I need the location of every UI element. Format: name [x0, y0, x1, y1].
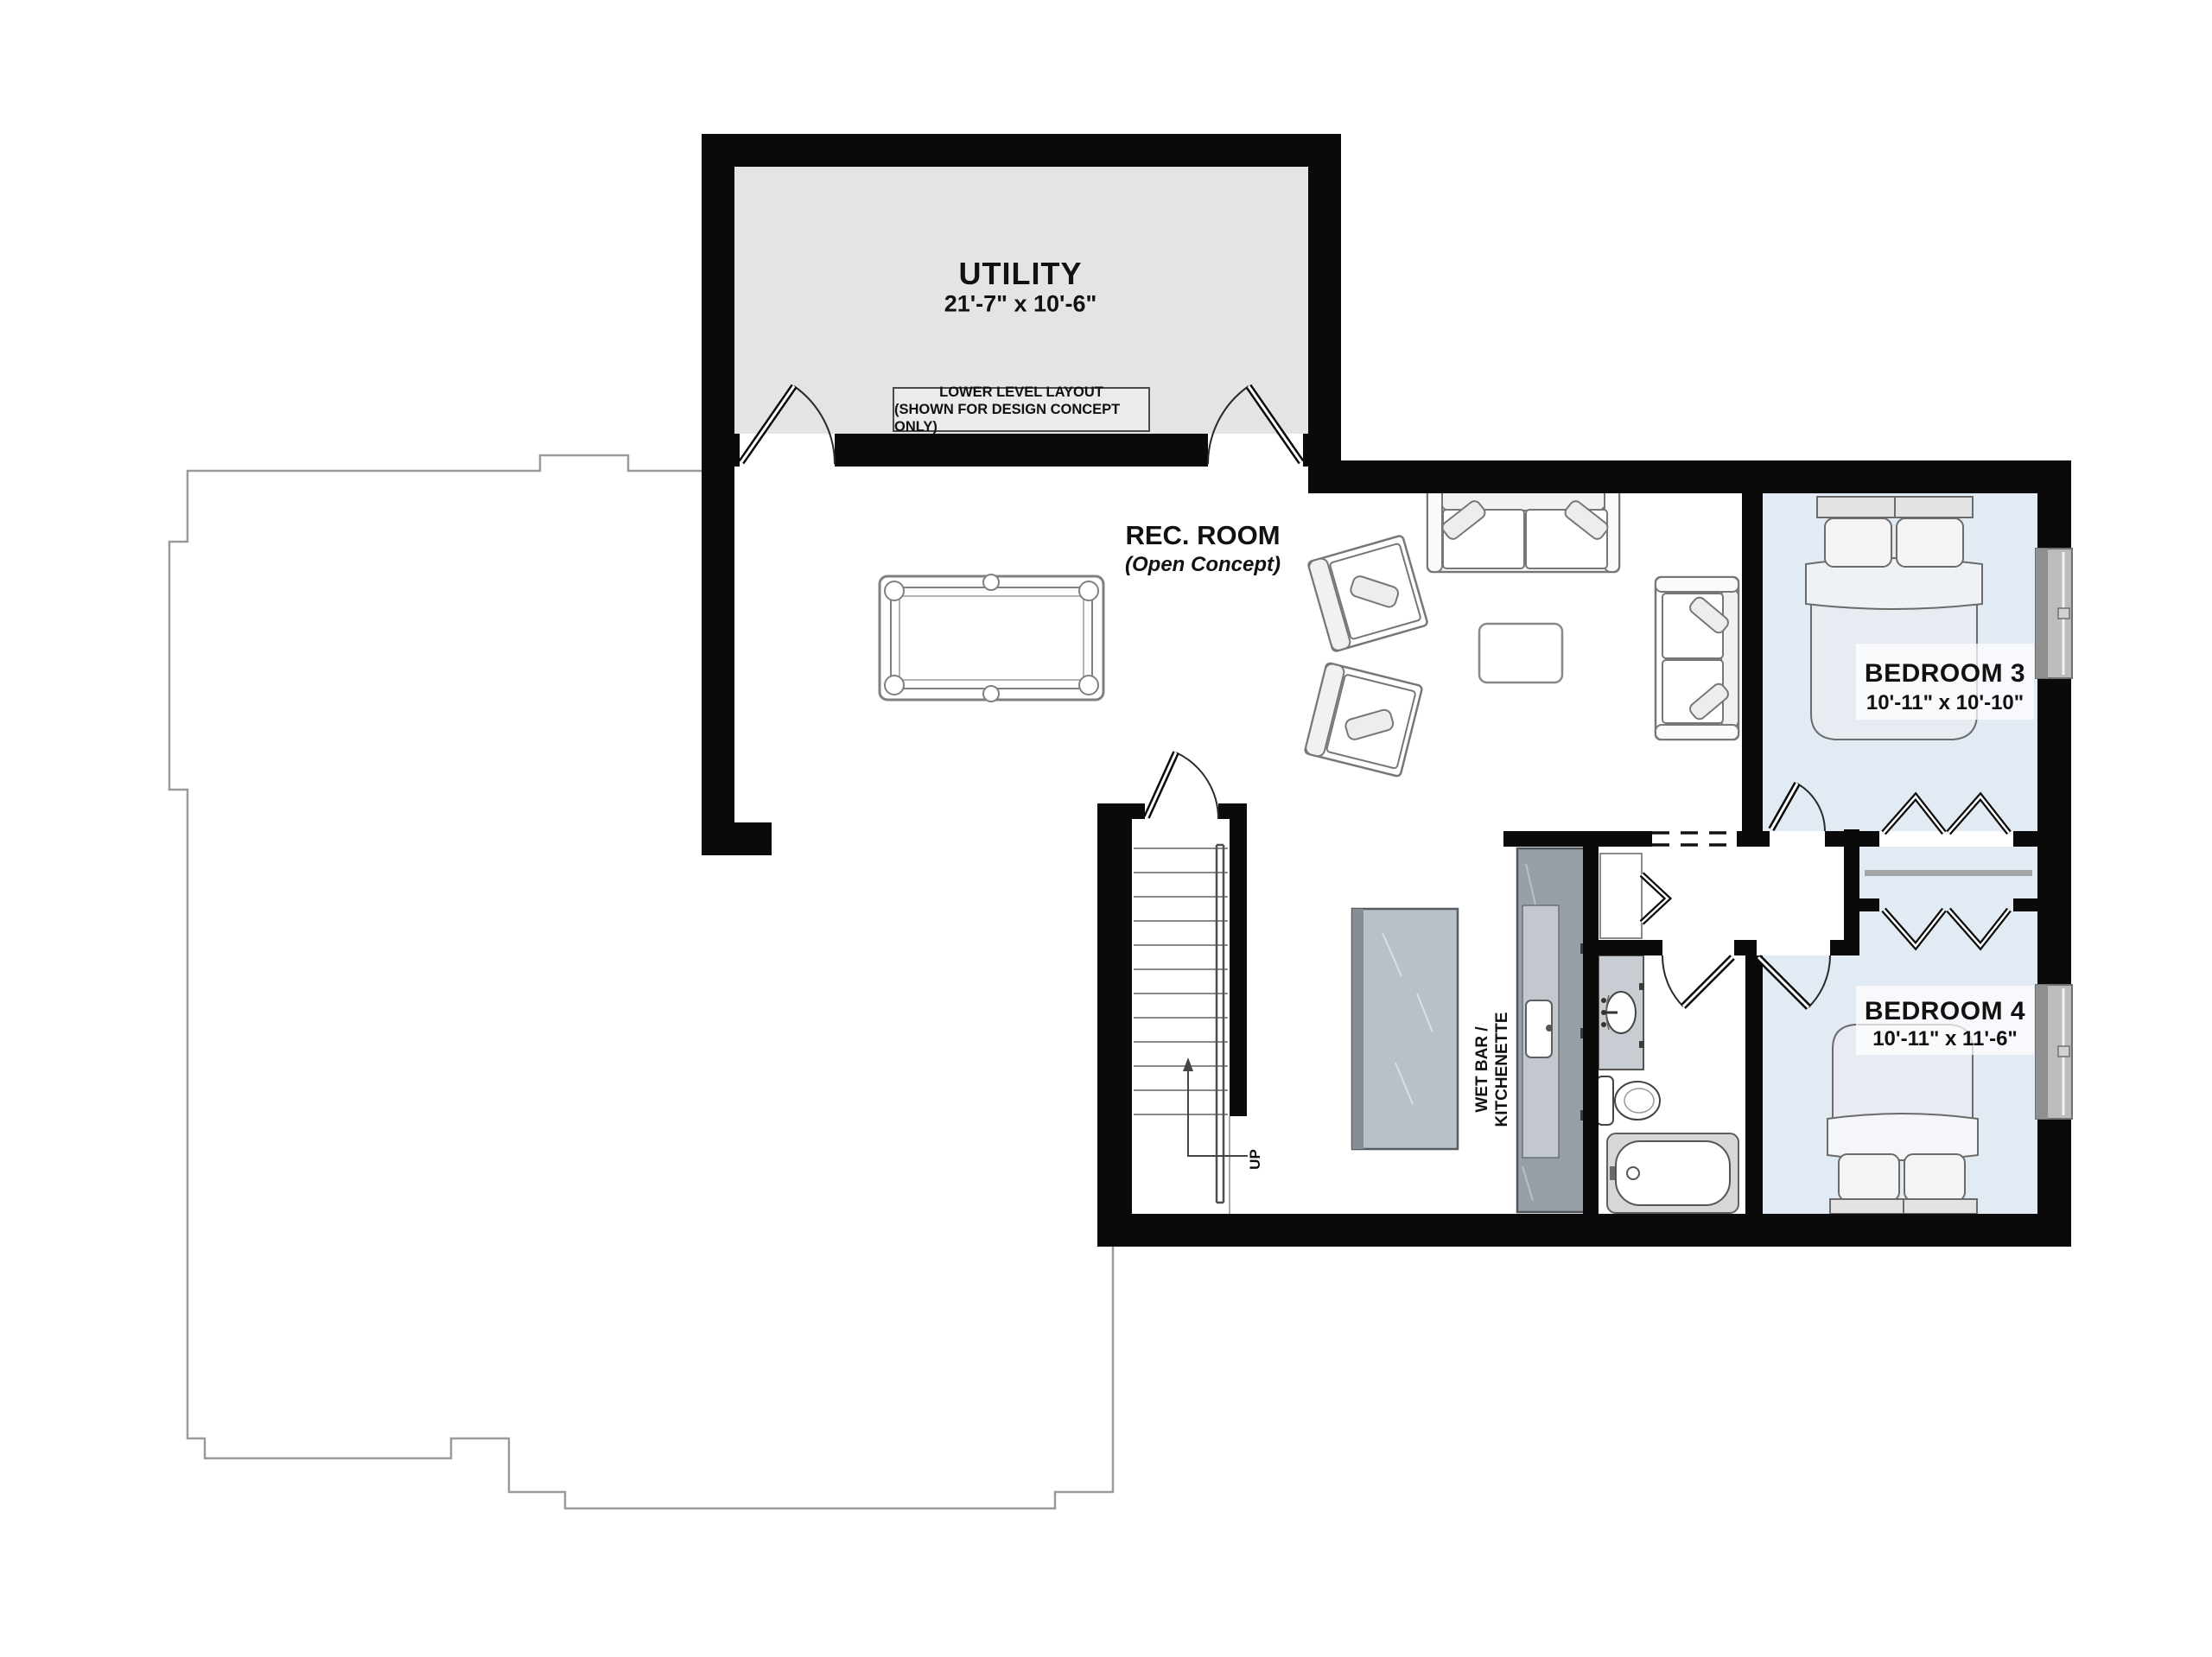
island-counter [1352, 909, 1458, 1149]
floor-plan-page: UTILITY 21'-7" x 10'-6" LOWER LEVEL LAYO… [0, 0, 2212, 1657]
bedroom4-label: BEDROOM 4 [1865, 997, 2025, 1026]
linen-closet [1600, 854, 1642, 938]
bedroom4-dims: 10'-11" x 11'-6" [1872, 1027, 2018, 1051]
bifold-door-icon-linen [1642, 874, 1668, 923]
disclaimer-box: LOWER LEVEL LAYOUT (SHOWN FOR DESIGN CON… [893, 387, 1150, 432]
closet-rod [1865, 870, 2032, 876]
bathtub-icon [1607, 1133, 1738, 1213]
toilet-icon [1597, 1076, 1660, 1125]
sofa-icon [1427, 488, 1619, 572]
stair-handrail [1217, 845, 1224, 1203]
bathroom-vanity [1599, 955, 1644, 1070]
up-label: UP [1247, 1149, 1264, 1170]
door-swing-icon-stairs [1147, 752, 1218, 819]
utility-room-label: UTILITY [959, 256, 1083, 292]
wet-bar-label: WET BAR / KITCHENETTE [1472, 1013, 1512, 1127]
window-icon-bedroom3 [2036, 549, 2072, 678]
disclaimer-line1: LOWER LEVEL LAYOUT [939, 384, 1103, 401]
rec-room-subtitle: (Open Concept) [1125, 553, 1281, 577]
rec-room-label: REC. ROOM [1125, 520, 1280, 551]
disclaimer-line2: (SHOWN FOR DESIGN CONCEPT ONLY) [894, 401, 1148, 435]
door-swing-icon-bathroom [1662, 955, 1732, 1006]
wet-bar-label-line1: WET BAR / [1472, 1013, 1492, 1127]
bedroom3-label: BEDROOM 3 [1865, 659, 2025, 689]
coffee-table-icon [1479, 624, 1562, 682]
window-icon-bedroom4 [2036, 985, 2072, 1119]
pool-table-icon [880, 575, 1103, 702]
armchair-icon [1307, 535, 1427, 651]
cased-opening-dashed [1652, 833, 1737, 845]
utility-room-dims: 21'-7" x 10'-6" [944, 291, 1097, 318]
stair-treads [1134, 848, 1228, 1114]
armchair-icon [1305, 663, 1423, 777]
wet-bar-label-line2: KITCHENETTE [1492, 1013, 1512, 1127]
loveseat-icon [1656, 577, 1738, 740]
wet-bar-counter [1517, 848, 1586, 1212]
floor-plan-canvas [0, 0, 2212, 1657]
bedroom3-dims: 10'-11" x 10'-10" [1866, 691, 2024, 715]
